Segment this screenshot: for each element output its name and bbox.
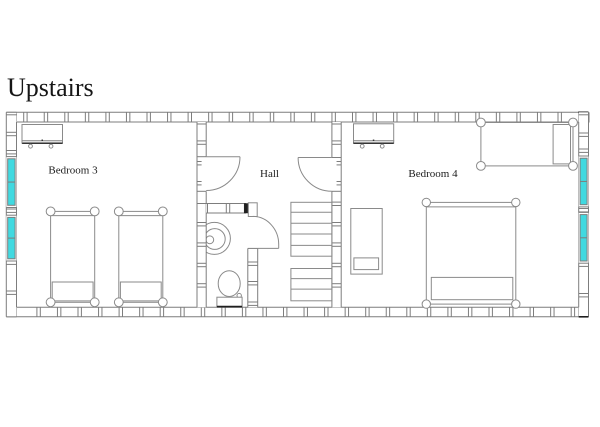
svg-text:Bedroom 4: Bedroom 4 <box>408 168 458 180</box>
svg-text:Upstairs: Upstairs <box>7 73 94 102</box>
svg-text:Hall: Hall <box>260 168 279 180</box>
svg-text:Bedroom 3: Bedroom 3 <box>48 165 98 177</box>
